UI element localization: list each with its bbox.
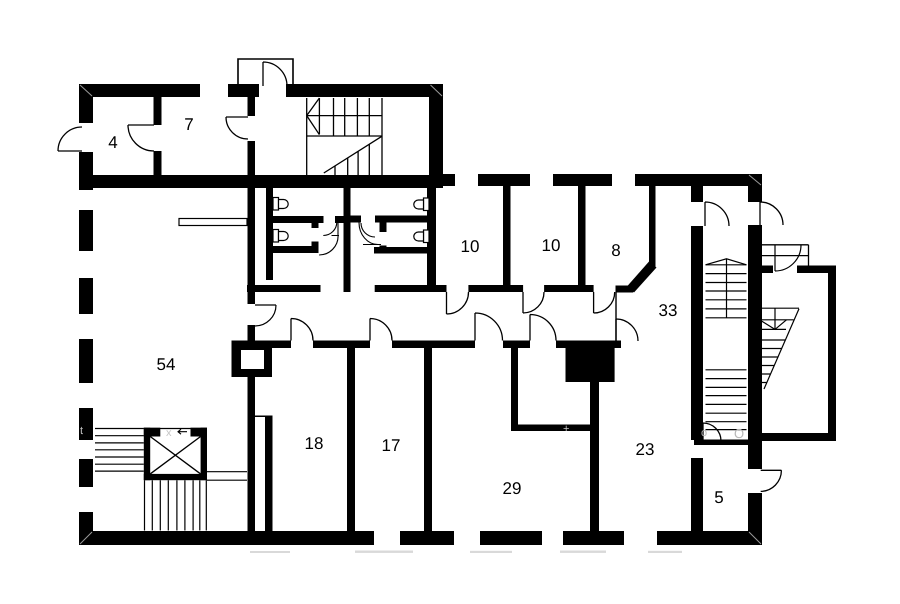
svg-text:10: 10 bbox=[461, 237, 480, 256]
svg-text:o: o bbox=[701, 427, 707, 439]
svg-text:+: + bbox=[563, 423, 569, 435]
svg-text:7: 7 bbox=[184, 115, 193, 134]
svg-text:4: 4 bbox=[108, 133, 117, 152]
svg-text:x: x bbox=[166, 427, 172, 439]
svg-text:29: 29 bbox=[503, 479, 522, 498]
svg-text:O: O bbox=[734, 426, 744, 441]
svg-text:17: 17 bbox=[382, 436, 401, 455]
svg-text:18: 18 bbox=[305, 434, 324, 453]
svg-text:10: 10 bbox=[542, 236, 561, 255]
svg-text:5: 5 bbox=[714, 488, 723, 507]
svg-text:23: 23 bbox=[636, 440, 655, 459]
svg-text:t: t bbox=[80, 425, 83, 437]
svg-text:54: 54 bbox=[157, 355, 176, 374]
svg-text:8: 8 bbox=[611, 241, 620, 260]
svg-text:33: 33 bbox=[659, 301, 678, 320]
